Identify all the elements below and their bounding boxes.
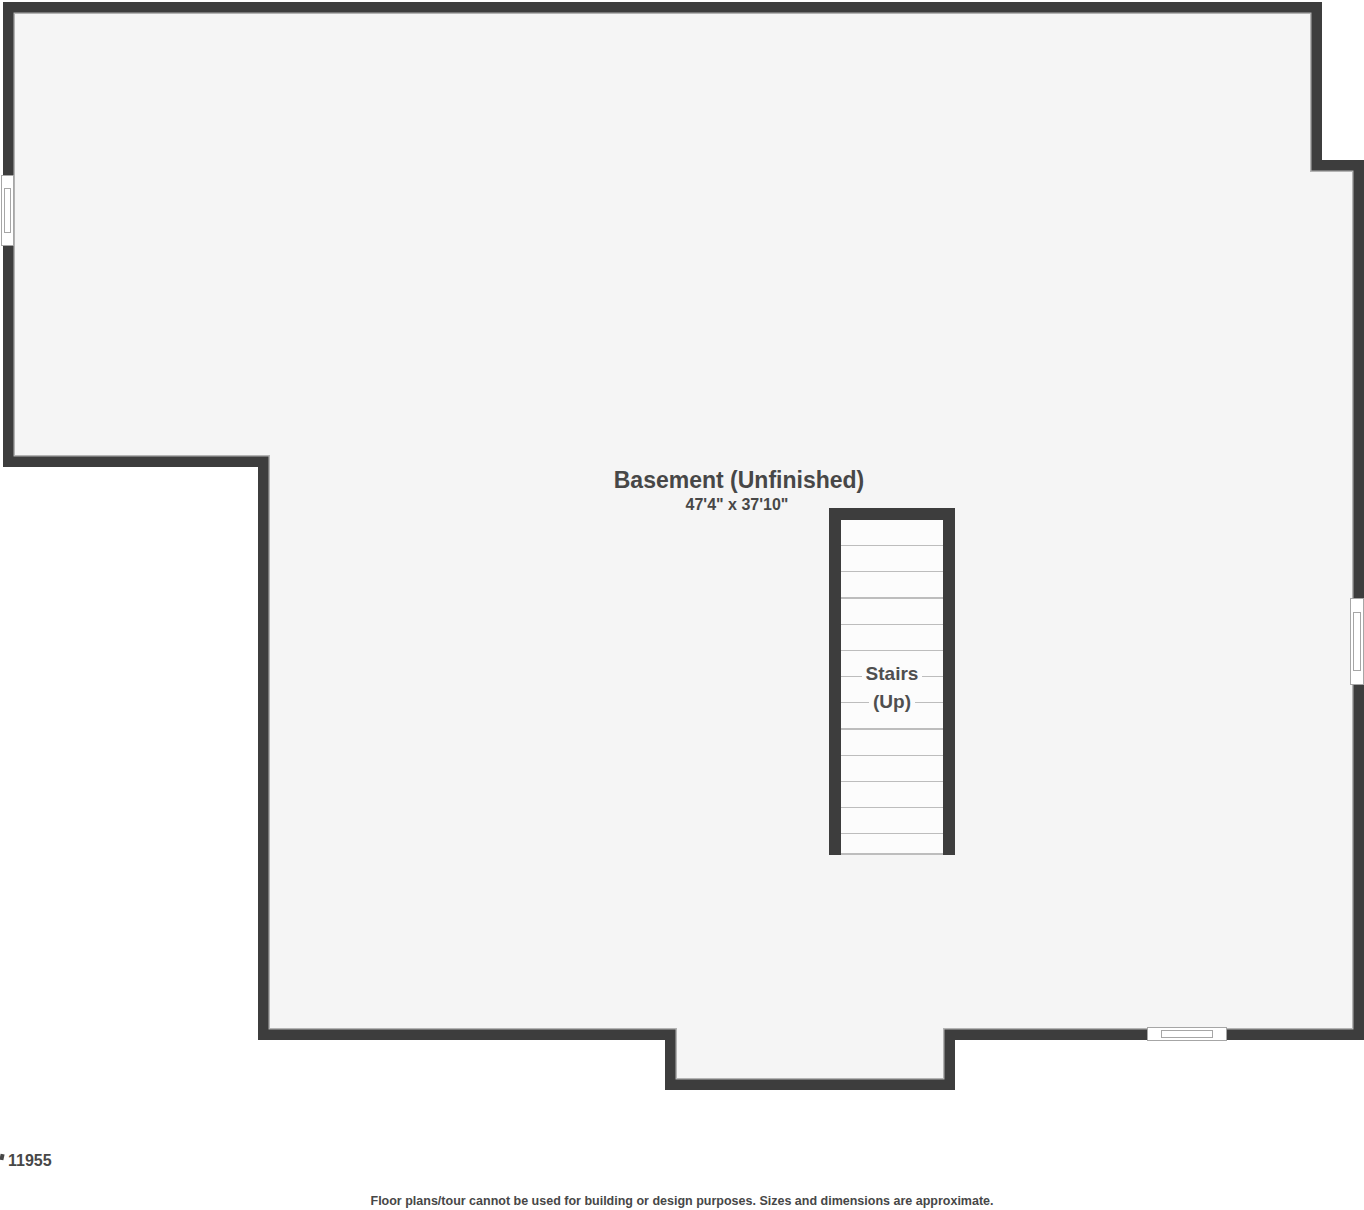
window-glass — [1353, 612, 1361, 671]
stairs-label-line1: Stairs — [862, 660, 923, 687]
window-glass — [4, 188, 11, 233]
window-bottom-wall — [1147, 1027, 1227, 1041]
cropped-character-fragment — [0, 1154, 5, 1161]
stairs-label-line2: (Up) — [869, 688, 915, 715]
window-glass — [1161, 1030, 1213, 1038]
room-title: Basement (Unfinished) — [614, 466, 864, 494]
staircase: Stairs (Up) — [829, 508, 955, 855]
window-left-wall — [1, 175, 14, 246]
stairs-label: Stairs (Up) — [841, 520, 943, 855]
room-dimensions: 47'4" x 37'10" — [686, 495, 789, 515]
listing-id: 11955 — [8, 1151, 52, 1171]
floor-plan: Stairs (Up) Basement (Unfinished) 47'4" … — [0, 0, 1364, 1210]
window-right-wall — [1350, 598, 1364, 685]
disclaimer-text: Floor plans/tour cannot be used for buil… — [370, 1193, 993, 1209]
